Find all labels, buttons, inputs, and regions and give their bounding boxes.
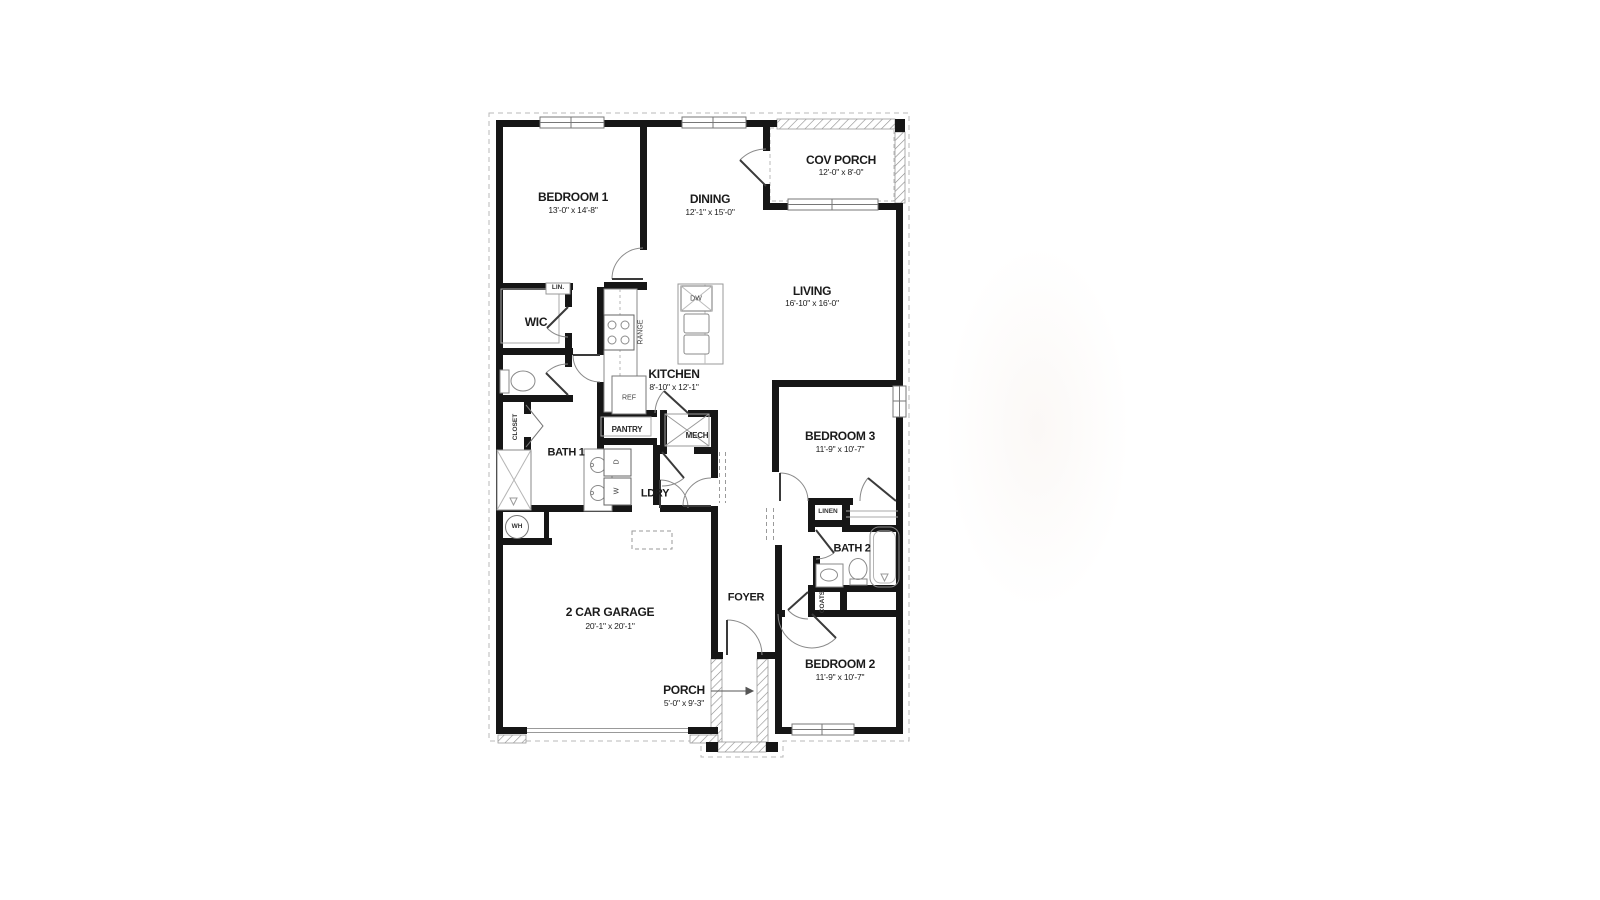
bedroom2-dims: 11'-9" x 10'-7" xyxy=(816,673,865,682)
porch-dims: 5'-0" x 9'-3" xyxy=(664,699,704,708)
bedroom3-dims: 11'-9" x 10'-7" xyxy=(816,445,865,454)
living-dims: 16'-10" x 16'-0" xyxy=(785,299,839,308)
floorplan-drawing xyxy=(0,0,1600,900)
pantry-label: PANTRY xyxy=(612,426,643,434)
dw-label: DW xyxy=(690,296,702,303)
vanity2-icon xyxy=(816,564,843,587)
covporch-label: COV PORCH xyxy=(806,154,876,166)
bedroom1-dims: 13'-0" x 14'-8" xyxy=(548,206,597,215)
dryer-label: D xyxy=(614,459,621,464)
garage-dims: 20'-1" x 20'-1" xyxy=(585,622,634,631)
garage-door-opening xyxy=(527,726,688,735)
toilet2-icon xyxy=(849,559,867,586)
linen-label: LINEN xyxy=(818,509,838,516)
bedroom2-label: BEDROOM 2 xyxy=(805,658,875,670)
dining-dims: 12'-1" x 15'-0" xyxy=(685,208,734,217)
dining-label: DINING xyxy=(690,193,730,205)
lin-label: LIN. xyxy=(552,285,564,292)
closet-label: CLOSET xyxy=(513,414,520,440)
tub-icon xyxy=(870,527,899,587)
wic-label: WIC xyxy=(525,316,547,328)
range-icon xyxy=(604,315,634,350)
living-label: LIVING xyxy=(793,285,831,297)
garage-label: 2 CAR GARAGE xyxy=(566,606,654,618)
range-label: RANGE xyxy=(638,320,645,345)
mech-room-icon xyxy=(665,414,709,446)
mech-label: MECH xyxy=(686,432,709,440)
bedroom2-window xyxy=(792,724,854,735)
bedroom3-window xyxy=(893,386,906,417)
bedroom3-label: BEDROOM 3 xyxy=(805,430,875,442)
washer-label: W xyxy=(614,488,621,495)
toilet-icon xyxy=(500,370,535,393)
ref-label: REF xyxy=(622,395,636,402)
shower-icon xyxy=(497,450,531,510)
porch-label: PORCH xyxy=(663,684,705,696)
covporch-dims: 12'-0" x 8'-0" xyxy=(819,168,864,177)
bedroom1-label: BEDROOM 1 xyxy=(538,191,608,203)
bath1-label: BATH 1 xyxy=(547,448,584,459)
dining-window xyxy=(682,117,746,128)
bath2-fixtures xyxy=(816,527,899,587)
sink-basin-2 xyxy=(684,335,709,354)
coats-label: COATS xyxy=(820,591,827,613)
bedroom1-window xyxy=(540,117,604,128)
ldry-label: LDRY xyxy=(641,489,669,500)
floorplan-page: BEDROOM 1 13'-0" x 14'-8" DINING 12'-1" … xyxy=(0,0,1600,900)
kitchen-dims: 8'-10" x 12'-1" xyxy=(649,383,698,392)
sink-basin-1 xyxy=(684,314,709,333)
kitchen-label: KITCHEN xyxy=(648,368,699,380)
foyer-label: FOYER xyxy=(728,593,764,604)
wh-label: WH xyxy=(512,524,523,531)
bath2-label: BATH 2 xyxy=(833,544,870,555)
covporch-window xyxy=(788,199,878,210)
